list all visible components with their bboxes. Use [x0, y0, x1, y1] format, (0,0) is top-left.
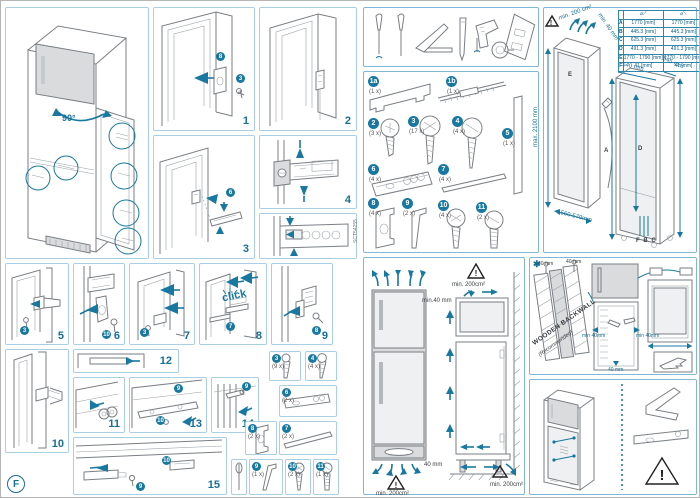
part-badge: 6 — [282, 388, 291, 397]
part-qty: (4 x) — [369, 177, 381, 183]
hinge-type-2-icon: ⌀⟍ — [663, 11, 700, 20]
step-number-4: 4 — [345, 195, 351, 206]
gap-right-label: min 40mm — [636, 334, 659, 339]
overview-art — [6, 8, 148, 258]
step2-art — [260, 8, 356, 130]
gap-bottom-label: 40 mm — [608, 368, 623, 373]
step-number-12: 12 — [160, 356, 172, 367]
inline-part-box: 10 (2 x) — [285, 459, 311, 495]
panel-tools — [363, 7, 539, 67]
part-id: 9 — [402, 198, 413, 209]
dim-value: 1770 [mm] — [623, 19, 663, 28]
part-qty: (2 x) — [477, 215, 489, 221]
step-number-1: 1 — [243, 116, 249, 127]
dim-value: 625.3 [mm] — [663, 37, 700, 46]
page-letter: F — [7, 475, 25, 493]
dim-value: 491.3 [mm] — [623, 45, 663, 54]
tag-left: 40 mm — [538, 262, 553, 267]
part-qty: (4 x) — [369, 211, 381, 217]
panel-step-10: 10 — [5, 349, 69, 453]
panel-step-4b — [259, 213, 357, 259]
part-qty: (1 x) — [316, 472, 328, 478]
part-id: 11 — [476, 202, 487, 213]
dim-letter-a: A — [604, 148, 608, 154]
inline-part-box: 9 (1 x) — [249, 459, 283, 495]
panel-step-6: 10 6 — [73, 263, 125, 345]
final-art: ! — [530, 380, 696, 494]
part-qty: (2 x) — [248, 434, 260, 440]
panel-step-8: click 7 8 — [199, 263, 267, 345]
part-badge: 7 — [226, 322, 235, 331]
part-qty: (4 x) — [453, 129, 465, 135]
step-number-15: 15 — [208, 480, 220, 491]
part-badge: 11 — [316, 462, 325, 471]
panel-step-13: 9 10 13 — [129, 377, 207, 433]
part-badge: 10 — [288, 462, 297, 471]
step-number-6: 6 — [114, 331, 120, 342]
dim-value: 445.3 [mm] — [663, 28, 700, 37]
inline-part-box: 6 (2 x) — [279, 385, 337, 417]
part-badge: 9 — [252, 462, 261, 471]
dim-value: 445.3 [mm] — [623, 28, 663, 37]
part-badge: 3 — [272, 354, 281, 363]
inline-part-box: 3 (9 x) — [269, 351, 301, 381]
part-badge: 9 — [242, 382, 251, 391]
dim-value: 1770 - 1790 [mm] — [623, 54, 663, 63]
step-number-2: 2 — [345, 116, 351, 127]
part-qty: (4 x) — [439, 177, 451, 183]
step-number-13: 13 — [190, 419, 202, 430]
inline-part-box: 7 (2 x) — [279, 421, 337, 455]
dim-value: 1770 [mm] — [663, 19, 700, 28]
part-badge: 10 — [162, 456, 171, 465]
panel-step-15: 10 9 15 — [73, 437, 227, 495]
panel-step-2: 2 — [259, 7, 357, 131]
part-id: 4 — [452, 116, 463, 127]
instruction-sheet: 90° 8 3 1 — [0, 0, 700, 498]
part-badge: 8 — [312, 326, 321, 335]
document-code: SCT54255 — [353, 219, 359, 243]
part-qty: (1 x) — [252, 472, 264, 478]
part-qty: (2 x) — [282, 398, 294, 404]
panel-overview: 90° — [5, 7, 149, 259]
part-qty: (3 x) — [369, 131, 381, 137]
panel-step-5: 3 5 — [5, 263, 69, 345]
dim-value: 491.3 [mm] — [663, 45, 700, 54]
part-badge: 3 — [140, 328, 149, 337]
part-badge: 3 — [20, 326, 29, 335]
panel-step-3: 6 3 — [153, 135, 255, 259]
part-qty: (2 x) — [288, 472, 300, 478]
step4b-art — [260, 214, 356, 258]
part-badge: 10 — [102, 330, 111, 339]
dim-letter-e: E — [568, 72, 572, 78]
svg-text:!: ! — [550, 20, 552, 27]
hinge-type-1-icon: ⌀⟋ — [623, 11, 663, 20]
step1-art — [154, 8, 254, 130]
part-badge: 3 — [236, 74, 245, 83]
step4a-art — [260, 136, 356, 208]
inline-part-box — [231, 459, 247, 495]
part-qty: (1 x) — [369, 89, 381, 95]
part-id: 1b — [446, 76, 457, 87]
panel-final: ! — [529, 379, 697, 495]
svg-text:!: ! — [660, 467, 665, 484]
svg-text:!: ! — [395, 481, 398, 490]
step-number-11: 11 — [108, 419, 120, 430]
tag-right: 40 mm — [566, 260, 581, 265]
dim-value: 625.3 [mm] — [623, 37, 663, 46]
inline-part-box: 11 (1 x) — [313, 459, 339, 495]
tools-art — [364, 8, 538, 66]
dim-letters-fbc: F B C — [636, 238, 657, 244]
step-number-8: 8 — [256, 331, 262, 342]
step15-art — [74, 438, 226, 494]
panel-step-11: 11 — [73, 377, 125, 433]
bottom-gap-label: 40 mm — [424, 462, 442, 468]
panel-step-9: 8 9 — [271, 263, 333, 345]
part-id: 3 — [408, 116, 419, 127]
part-qty: (1 x) — [503, 141, 515, 147]
part-badge: 8 — [248, 424, 257, 433]
step-number-9: 9 — [322, 331, 328, 342]
svg-text:!: ! — [475, 269, 478, 278]
panel-parts: 1a (1 x) 1b (1 x) 2 (3 x) 3 (17 x) 4 (4 … — [363, 71, 539, 253]
part-qty: (17 x) — [409, 129, 424, 135]
step-number-7: 7 — [184, 331, 190, 342]
part-id: 7 — [438, 164, 449, 175]
part-badge: 4 — [308, 354, 317, 363]
part-qty: (4 x) — [439, 213, 451, 219]
panel-ventilation: ! — [363, 257, 525, 495]
panel-step-1: 8 3 1 — [153, 7, 255, 131]
part-qty: (2 x) — [282, 434, 294, 440]
part-badge: 6 — [226, 188, 235, 197]
part-qty: (2 x) — [403, 211, 415, 217]
part-id: 1a — [368, 76, 379, 87]
step3-art — [154, 136, 254, 258]
part-qty: (4 x) — [308, 364, 320, 370]
part-id: 5 — [502, 128, 513, 139]
panel-step-4a: 4 — [259, 135, 357, 209]
part-qty: (9 x) — [272, 364, 284, 370]
part-id: 8 — [368, 198, 379, 209]
part-id: 10 — [438, 200, 449, 211]
step-number-5: 5 — [58, 331, 64, 342]
top-gap-label: min.40 mm — [422, 298, 452, 304]
angle-label: 90° — [62, 114, 76, 123]
part-badge: 9 — [174, 384, 183, 393]
parts-art — [364, 72, 538, 252]
max-height-label: max. 2100 mm — [533, 107, 539, 147]
part-qty: (1 x) — [447, 89, 459, 95]
step-number-10: 10 — [52, 439, 64, 450]
panel-dimensions: ! — [543, 7, 697, 253]
part-id: 6 — [368, 164, 379, 175]
ventilation-art: ! — [364, 258, 524, 494]
dim-letter-d: D — [638, 146, 642, 152]
gap-left-label: min 40mm — [582, 334, 605, 339]
panel-step-12: 12 — [73, 349, 179, 373]
part-badge: 7 — [282, 424, 291, 433]
part-id: 2 — [368, 118, 379, 129]
part-badge: 9 — [136, 482, 145, 491]
vent-warning-bottom: min. 200cm² — [376, 491, 409, 497]
panel-backwall: ✱ 40 mm 40 mm WOODEN BACKWALL (Recommend… — [529, 257, 697, 375]
vent-warning-top: min. 200cm² — [452, 282, 485, 288]
part-badge: 8 — [216, 52, 225, 61]
step-number-3: 3 — [243, 244, 249, 255]
inline-part-box: 8 (2 x) — [245, 421, 277, 455]
vent-warning-right: min. 200cm² — [490, 482, 523, 488]
part-badge: 10 — [156, 416, 165, 425]
step10-art — [6, 350, 68, 452]
inline-part-box: 4 (4 x) — [305, 351, 337, 381]
backwall-art — [530, 258, 696, 374]
panel-step-7: 3 7 — [129, 263, 195, 345]
